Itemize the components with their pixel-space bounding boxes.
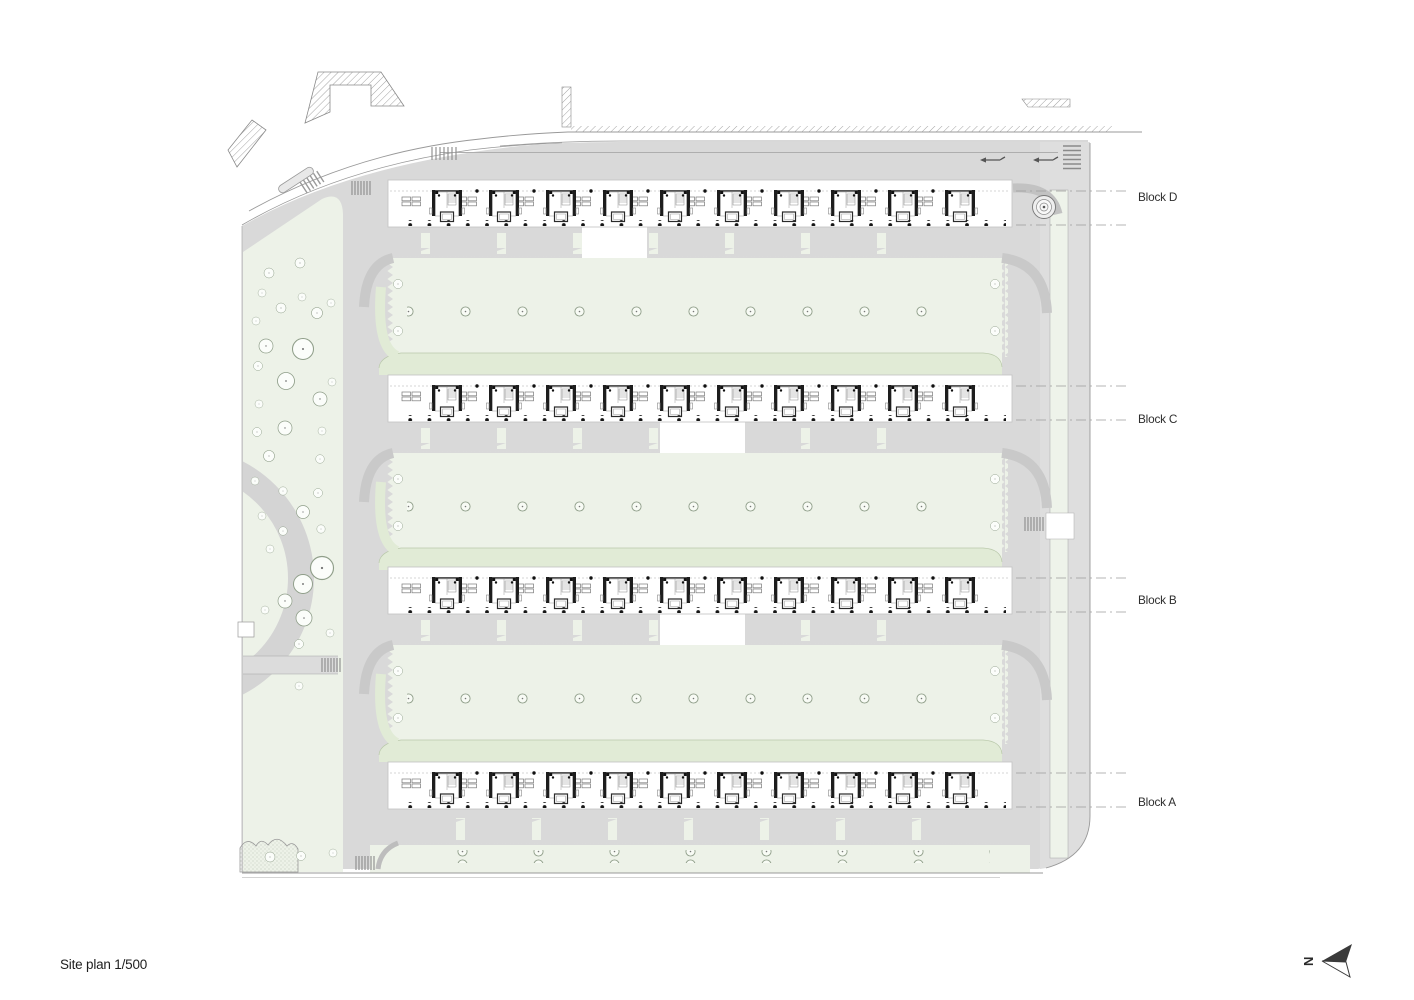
park-kiosk	[238, 622, 254, 637]
block-label-c: Block C	[1138, 412, 1178, 426]
block-a-strip	[388, 762, 1012, 809]
courtyard-1-gap	[582, 227, 647, 258]
crosswalk-road-start	[432, 147, 456, 160]
plan-title: Site plan 1/500	[60, 957, 147, 972]
south-verge	[370, 818, 1030, 873]
block-label-a: Block A	[1138, 795, 1176, 809]
park-cross-path	[243, 656, 338, 674]
courtyard-2-gap	[660, 422, 745, 453]
courtyard-1	[364, 233, 1047, 375]
block-d-strip	[388, 180, 1012, 227]
path-connector	[1046, 513, 1074, 539]
block-c-strip	[388, 375, 1012, 422]
north-letter: N	[1301, 957, 1316, 966]
crosswalk-east	[1025, 517, 1043, 531]
block-label-b: Block B	[1138, 593, 1177, 607]
site-plan-canvas: Block D Block C Block B Block A Site pla…	[0, 0, 1414, 1000]
park-stairs	[322, 658, 340, 672]
site-plan-page: Block D Block C Block B Block A Site pla…	[0, 0, 1414, 1000]
stairs-south	[356, 856, 374, 870]
block-b-strip	[388, 567, 1012, 614]
block-label-d: Block D	[1138, 190, 1177, 204]
stairs-northwest	[352, 181, 370, 195]
courtyard-3-gap	[660, 614, 745, 645]
